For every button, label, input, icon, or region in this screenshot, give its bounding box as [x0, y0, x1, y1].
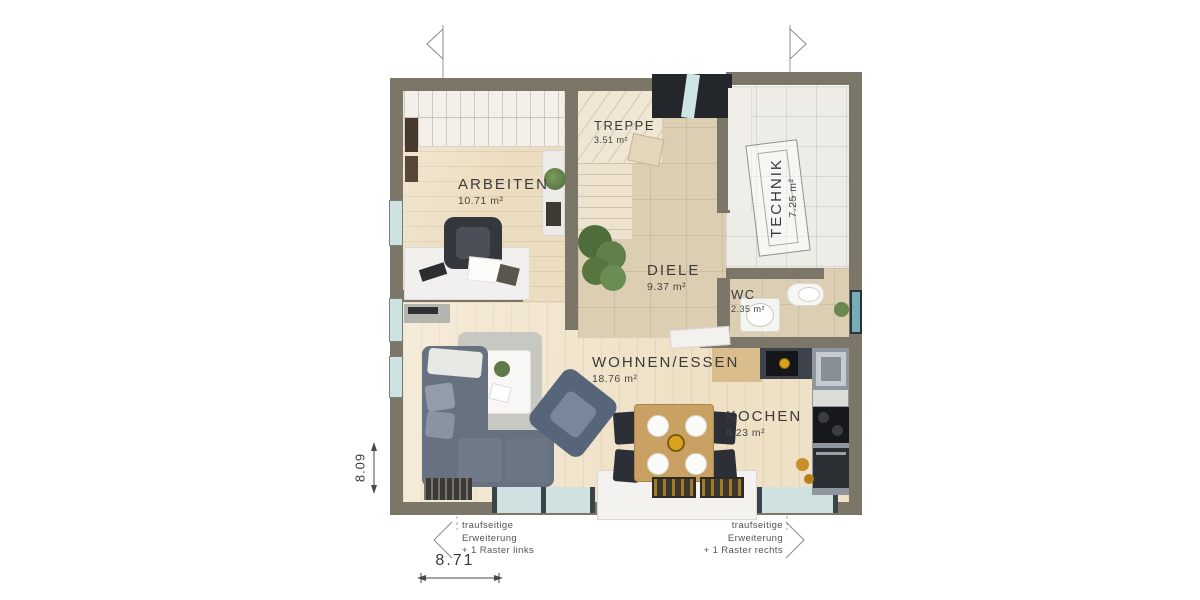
- faucet-gold: [779, 358, 790, 369]
- room-area: 9.37 m²: [647, 281, 700, 293]
- pergola-glazing: [404, 91, 564, 147]
- wall-arbeiten-vertical: [565, 91, 578, 330]
- kitchen-steel-sink: [816, 352, 846, 386]
- room-area: 3.51 m²: [594, 135, 655, 145]
- dim-arrow-up-icon: [371, 442, 377, 451]
- dim-arrow-right-icon: [494, 575, 503, 581]
- annotation-line: Erweiterung: [462, 533, 534, 546]
- door-mat: [700, 477, 744, 498]
- annotation-left: traufseitige Erweiterung + 1 Raster link…: [462, 520, 534, 558]
- table-plant: [494, 361, 510, 377]
- annotation-line: traufseitige: [462, 520, 534, 533]
- door-mullion: [757, 487, 762, 513]
- floorplan-canvas: ARBEITEN 10.71 m² TREPPE 3.51 m² TECHNIK…: [0, 0, 1200, 600]
- annotation-line: Erweiterung: [685, 533, 783, 546]
- sliding-door-left: [492, 487, 595, 513]
- floor-plant: [578, 215, 630, 293]
- plate: [647, 415, 669, 437]
- room-area: 6.23 m²: [726, 427, 802, 439]
- door-mat: [652, 477, 696, 498]
- room-title: WOHNEN/ESSEN: [592, 354, 739, 371]
- decor-jar: [796, 458, 809, 471]
- annotation-line: traufseitige: [685, 520, 783, 533]
- corner-mat: [424, 478, 472, 500]
- annotation-line: + 1 Raster rechts: [685, 545, 783, 558]
- room-area: 18.76 m²: [592, 373, 739, 385]
- wall-wc-top: [726, 268, 824, 279]
- tv: [408, 307, 438, 314]
- room-label-treppe: TREPPE 3.51 m²: [594, 118, 655, 145]
- room-title: KOCHEN: [726, 408, 802, 425]
- room-title: WC: [731, 287, 765, 302]
- chevron-right-icon: [786, 522, 804, 558]
- plate: [685, 415, 707, 437]
- dim-arrow-down-icon: [371, 485, 377, 494]
- dimension-height: 8.09: [353, 448, 368, 488]
- burner: [818, 412, 829, 423]
- burner: [832, 425, 843, 436]
- room-label-technik: TECHNIK 7.25 m²: [768, 138, 804, 258]
- chair-seat: [456, 227, 490, 259]
- wall-top-left: [390, 78, 660, 91]
- room-label-arbeiten: ARBEITEN 10.71 m²: [458, 176, 549, 207]
- door-mullion: [492, 487, 497, 513]
- plate: [685, 453, 707, 475]
- annotation-line: + 1 Raster links: [462, 545, 534, 558]
- wall-top-right: [726, 72, 862, 85]
- sofa-seat: [458, 438, 502, 482]
- room-area: 2.35 m²: [731, 304, 765, 314]
- room-label-kochen: KOCHEN 6.23 m²: [726, 408, 802, 439]
- picture-frame: [405, 156, 418, 182]
- sofa-seat: [506, 438, 548, 482]
- window-right-wc: [850, 290, 862, 334]
- window-left-2: [389, 298, 403, 342]
- kitchen-counter-mid: [813, 390, 848, 406]
- window-left-1: [389, 200, 403, 246]
- room-label-wc: WC 2.35 m²: [731, 287, 765, 314]
- sofa-cushion: [424, 382, 455, 412]
- wc-toilet: [787, 283, 824, 306]
- room-title: DIELE: [647, 262, 700, 279]
- extension-flag-right-icon: [790, 29, 806, 59]
- extension-flag-left-icon: [427, 29, 443, 59]
- sofa-cushion: [425, 411, 456, 440]
- annotation-right: traufseitige Erweiterung + 1 Raster rech…: [685, 520, 783, 558]
- decor-jar: [804, 474, 814, 484]
- oven: [813, 448, 849, 488]
- dim-arrow-left-icon: [417, 575, 426, 581]
- wc-plant: [834, 302, 849, 317]
- oven-handle: [816, 452, 846, 455]
- window-left-3: [389, 356, 403, 398]
- room-area: 10.71 m²: [458, 195, 549, 207]
- wall-left: [390, 78, 403, 515]
- room-label-wohnen-essen: WOHNEN/ESSEN 18.76 m²: [592, 354, 739, 385]
- picture-frame: [405, 118, 418, 152]
- room-title: ARBEITEN: [458, 176, 549, 193]
- plant-leaf: [600, 265, 626, 291]
- sofa-pillow: [427, 348, 483, 379]
- room-title: TREPPE: [594, 118, 655, 133]
- toilet-bowl: [798, 287, 820, 302]
- centerpiece-gold: [667, 434, 685, 452]
- table-book: [488, 383, 511, 403]
- sink-bowl: [821, 357, 841, 381]
- room-title: TECHNIK: [768, 138, 785, 258]
- plate: [647, 453, 669, 475]
- tv-board: [404, 304, 450, 323]
- armchair-seat: [548, 389, 599, 440]
- room-label-diele: DIELE 9.37 m²: [647, 262, 700, 293]
- door-mullion: [590, 487, 595, 513]
- room-area: 7.25 m²: [787, 138, 799, 258]
- door-mullion: [541, 487, 546, 513]
- dining-table: [634, 404, 714, 482]
- cooktop: [813, 407, 849, 443]
